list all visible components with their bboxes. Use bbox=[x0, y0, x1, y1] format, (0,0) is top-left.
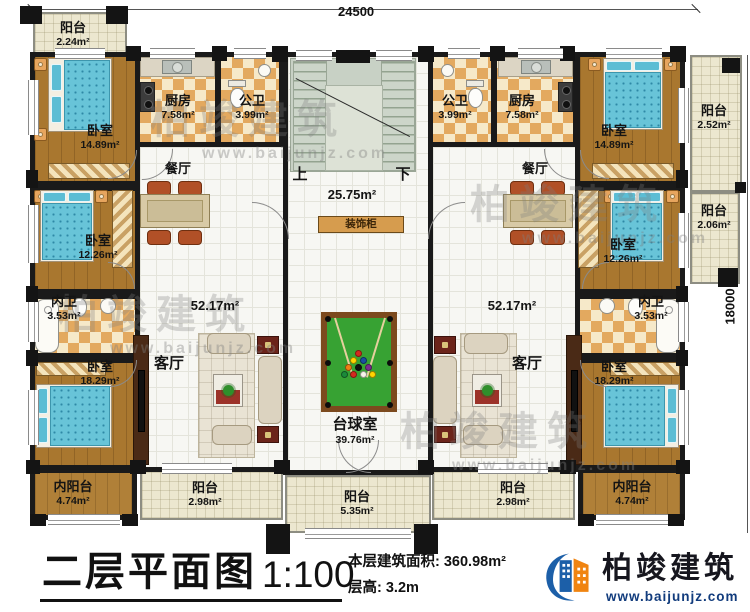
floor-height-text: 层高: 3.2m bbox=[348, 580, 419, 597]
kitchen-sink bbox=[521, 60, 551, 74]
dining-table bbox=[503, 194, 573, 228]
room-label-living-right: 客厅 bbox=[512, 355, 542, 373]
room-label-bath-public-right: 公卫3.99m² bbox=[438, 94, 471, 121]
room-label-bath-inner-left: 内卫3.53m² bbox=[47, 295, 80, 322]
room-label-balcony-bottom-right: 阳台2.98m² bbox=[496, 481, 529, 508]
pillow bbox=[667, 417, 677, 443]
mattress bbox=[50, 386, 110, 446]
dimension-height-label: 18000 bbox=[724, 288, 737, 324]
tv-wall-unit bbox=[566, 335, 582, 465]
decorative-cabinet: 装饰柜 bbox=[318, 216, 404, 233]
floor-plan-canvas: 24500 18000 装饰柜 bbox=[0, 0, 750, 612]
room-label-balcony-right: 阳台2.06m² bbox=[697, 204, 730, 231]
pillow bbox=[68, 192, 91, 202]
billiard-balls bbox=[341, 350, 377, 384]
bath-sink bbox=[258, 64, 271, 77]
dining-chair bbox=[178, 230, 202, 245]
stove bbox=[558, 82, 573, 112]
pillow bbox=[606, 61, 632, 71]
mattress bbox=[605, 72, 661, 128]
nightstand bbox=[666, 190, 679, 203]
sofa bbox=[433, 356, 457, 424]
stove bbox=[140, 82, 155, 112]
room-area-living-left: 52.17m² bbox=[191, 299, 239, 314]
bath-sink bbox=[100, 298, 116, 314]
pillow bbox=[51, 96, 62, 123]
room-label-bedroom-bottom-left: 卧室18.29m² bbox=[80, 360, 119, 387]
company-logo-url: www.baijunjz.com bbox=[606, 590, 739, 604]
dining-chair bbox=[510, 230, 534, 245]
room-label-kitchen-right: 厨房7.58m² bbox=[505, 94, 538, 121]
nightstand bbox=[34, 58, 47, 71]
sofa bbox=[464, 333, 508, 354]
pillow bbox=[38, 417, 48, 443]
nightstand bbox=[588, 58, 601, 71]
mattress bbox=[605, 386, 665, 446]
room-label-kitchen-left: 厨房7.58m² bbox=[161, 94, 194, 121]
pillow bbox=[638, 192, 661, 202]
stair-hall-area: 25.75m² bbox=[328, 188, 376, 203]
dining-table bbox=[140, 194, 210, 228]
staircase bbox=[290, 58, 416, 172]
room-area-living-right: 52.17m² bbox=[488, 299, 536, 314]
room-label-bedroom-top-right: 卧室14.89m² bbox=[594, 124, 633, 151]
stair-flight-up bbox=[293, 61, 327, 171]
room-label-balcony-bottom-center: 阳台5.35m² bbox=[340, 490, 373, 517]
room-label-bedroom-mid-right: 卧室12.26m² bbox=[603, 238, 642, 265]
mattress bbox=[64, 60, 110, 130]
wardrobe bbox=[578, 190, 599, 268]
side-cabinet bbox=[434, 426, 456, 443]
dimension-line-right bbox=[747, 55, 748, 533]
coffee-table bbox=[213, 374, 243, 407]
pillow bbox=[51, 64, 62, 91]
pillow bbox=[613, 192, 636, 202]
plan-title: 二层平面图 bbox=[42, 552, 257, 592]
tv-wall-unit bbox=[133, 335, 149, 465]
stair-flight-down bbox=[381, 61, 415, 171]
room-label-bedroom-bottom-right: 卧室18.29m² bbox=[594, 360, 633, 387]
company-logo-text: 柏竣建筑 bbox=[602, 554, 738, 584]
coffee-table bbox=[472, 374, 502, 407]
dimension-width-label: 24500 bbox=[338, 5, 374, 18]
company-logo-icon bbox=[540, 550, 596, 604]
toilet-tank bbox=[228, 80, 246, 87]
stair-down-label: 下 bbox=[395, 166, 410, 184]
room-label-balcony-top-left: 阳台2.24m² bbox=[56, 21, 89, 48]
room-label-dining-right: 餐厅 bbox=[522, 162, 548, 177]
nightstand bbox=[95, 190, 108, 203]
room-label-bath-inner-right: 内卫3.53m² bbox=[634, 295, 667, 322]
kitchen-sink bbox=[162, 60, 192, 74]
pillow bbox=[38, 388, 48, 414]
pillow bbox=[43, 192, 66, 202]
room-label-bedroom-top-left: 卧室14.89m² bbox=[80, 124, 119, 151]
sofa bbox=[207, 333, 251, 354]
room-label-billiard: 台球室39.76m² bbox=[332, 416, 377, 446]
side-cabinet bbox=[257, 426, 279, 443]
dining-chair bbox=[541, 230, 565, 245]
toilet-tank bbox=[466, 80, 484, 87]
sofa bbox=[212, 425, 252, 445]
room-label-bath-public-left: 公卫3.99m² bbox=[235, 94, 268, 121]
pillow bbox=[634, 61, 660, 71]
floor-area-text: 本层建筑面积: 360.98m² bbox=[348, 554, 506, 571]
sofa bbox=[258, 356, 282, 424]
stair-up-label: 上 bbox=[292, 166, 307, 184]
room-label-bedroom-mid-left: 卧室12.26m² bbox=[78, 234, 117, 261]
pillow bbox=[667, 388, 677, 414]
room-label-balcony-top-right: 阳台2.52m² bbox=[697, 104, 730, 131]
room-label-inner-balcony-right: 内阳台4.74m² bbox=[612, 480, 651, 507]
room-label-living-left: 客厅 bbox=[154, 355, 184, 373]
side-cabinet bbox=[257, 336, 279, 354]
sofa bbox=[463, 425, 503, 445]
bath-sink bbox=[599, 298, 615, 314]
plan-scale: 1:100 bbox=[262, 556, 355, 593]
side-cabinet bbox=[434, 336, 456, 354]
room-label-dining-left: 餐厅 bbox=[165, 162, 191, 177]
bath-sink bbox=[441, 64, 454, 77]
title-underline bbox=[40, 599, 342, 602]
room-label-inner-balcony-left: 内阳台4.74m² bbox=[53, 480, 92, 507]
room-label-balcony-bottom-left: 阳台2.98m² bbox=[188, 481, 221, 508]
dining-chair bbox=[147, 230, 171, 245]
